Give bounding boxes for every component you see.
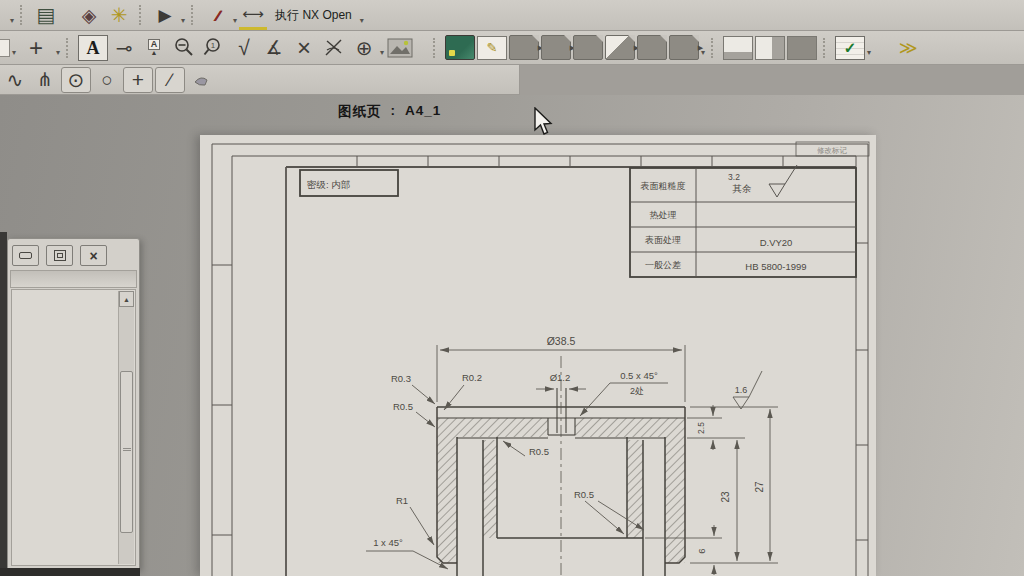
sheet-caption-label: 图纸页 bbox=[338, 103, 382, 121]
scroll-up-icon[interactable]: ▲ bbox=[119, 291, 134, 307]
table-check-icon[interactable]: ✓ bbox=[835, 36, 865, 60]
eye-tool-icon[interactable] bbox=[187, 67, 215, 93]
panel-scrollbar[interactable]: ▲ bbox=[118, 291, 134, 564]
scrollbar-grip bbox=[123, 448, 131, 451]
crosshair-icon[interactable]: + bbox=[18, 35, 54, 61]
sheet-tool-icon[interactable]: ▶ bbox=[541, 35, 571, 60]
toolbar-drag-handle[interactable] bbox=[711, 38, 717, 58]
dropdown-caret-icon[interactable]: ▾ bbox=[867, 38, 871, 57]
dimensions bbox=[366, 345, 778, 575]
center-mark-icon[interactable]: ⊕ bbox=[350, 35, 378, 61]
text-note-icon[interactable]: A bbox=[78, 35, 108, 61]
dim-chamfer-places: 2处 bbox=[630, 386, 644, 396]
zoom-out-icon[interactable] bbox=[170, 35, 198, 61]
section-strikes-icon[interactable]: ∕∕∕ bbox=[203, 2, 231, 28]
sheet-tool-icon[interactable]: ▶ bbox=[669, 35, 699, 60]
dim-height-overall: 27 bbox=[754, 481, 765, 493]
window-full-icon[interactable] bbox=[787, 36, 817, 60]
svg-text:1: 1 bbox=[211, 41, 216, 50]
window-layout-icon[interactable] bbox=[723, 36, 753, 60]
dim-chamfer-top: 0.5 x 45° bbox=[620, 370, 658, 381]
dim-height-inner: 23 bbox=[720, 491, 731, 503]
clipped-grid-icon[interactable] bbox=[0, 39, 10, 57]
panel-content[interactable]: ▲ bbox=[11, 289, 136, 566]
edit-sheet-icon[interactable]: ✎ bbox=[477, 36, 507, 60]
panel-buttons: × bbox=[8, 239, 139, 270]
datum-angle-icon[interactable]: ∡ bbox=[260, 35, 288, 61]
dim-chamfer-bottom: 1 x 45° bbox=[373, 537, 403, 548]
branch-arrow-icon[interactable]: ⋔ bbox=[31, 67, 59, 93]
dim-hole-dia: Ø1.2 bbox=[550, 372, 571, 383]
restore-icon bbox=[54, 250, 66, 261]
titleblock-row-label: 表面粗糙度 bbox=[640, 181, 686, 191]
clipped-tool-icon[interactable] bbox=[0, 2, 8, 28]
security-label: 密级: 内部 bbox=[307, 179, 350, 190]
sheet-tool-icon[interactable] bbox=[637, 35, 667, 60]
dropdown-caret-icon[interactable]: ▾ bbox=[360, 6, 364, 25]
plus-symbol-icon[interactable]: + bbox=[123, 67, 153, 93]
dimension-labels: Ø38.5 Ø1.2 0.5 x 45° 2处 R0.3 R0.2 R0.5 R… bbox=[373, 335, 765, 554]
screen-edge-dark bbox=[0, 232, 7, 576]
titleblock-row-value: D.VY20 bbox=[760, 237, 793, 248]
sheet-tool-icon[interactable] bbox=[573, 35, 603, 60]
titleblock-row-value: 其余 bbox=[733, 183, 753, 194]
spline-icon[interactable]: ∿ bbox=[1, 67, 29, 93]
intersection-icon[interactable] bbox=[320, 35, 348, 61]
play-feature-icon[interactable]: ▶ bbox=[151, 2, 179, 28]
minimize-icon bbox=[19, 252, 32, 259]
floating-panel: × ▲ bbox=[7, 238, 140, 570]
surface-finish-icon[interactable]: √ bbox=[230, 35, 258, 61]
nx-open-button[interactable]: 执行 NX Open bbox=[269, 2, 358, 28]
delete-cross-icon[interactable]: × bbox=[290, 35, 318, 61]
dim-r03: R0.3 bbox=[391, 373, 411, 384]
close-button[interactable]: × bbox=[80, 245, 107, 266]
flag-pole: ▲ bbox=[151, 49, 158, 56]
window-split-icon[interactable] bbox=[755, 36, 785, 60]
sheet-caption: 图纸页 : A4_1 bbox=[338, 103, 441, 121]
slash-symbol-icon[interactable]: ∕ bbox=[155, 67, 185, 93]
zoom-selection-icon[interactable]: 1 bbox=[200, 35, 228, 61]
circle-symbol-icon[interactable]: ○ bbox=[93, 67, 121, 93]
dim-r05-floor: R0.5 bbox=[574, 489, 594, 500]
dropdown-caret-icon[interactable]: ▾ bbox=[380, 38, 384, 57]
dim-r05-left: R0.5 bbox=[393, 401, 413, 412]
dropdown-caret-icon[interactable]: ▾ bbox=[233, 6, 237, 25]
dim-r1: R1 bbox=[396, 495, 408, 506]
dropdown-caret-icon[interactable]: ▾ bbox=[181, 6, 185, 25]
drawing-sheet[interactable]: 修改标记 密级: 内部 表面粗糙度 bbox=[200, 135, 876, 576]
revision-label: 修改标记 bbox=[817, 146, 848, 155]
titleblock-row-label: 一般公差 bbox=[645, 260, 681, 270]
label-flag-icon[interactable]: A ▲ bbox=[140, 35, 168, 61]
dim-r02: R0.2 bbox=[462, 372, 482, 383]
toolbar-separator bbox=[139, 5, 145, 25]
part-section bbox=[437, 356, 685, 576]
dim-web-thickness: 2.5 bbox=[696, 422, 706, 434]
leader-icon[interactable]: ⊸ bbox=[110, 35, 138, 61]
titleblock-row-value: HB 5800-1999 bbox=[745, 261, 806, 272]
circle-dot-symbol-icon[interactable]: ⊙ bbox=[61, 67, 91, 93]
mouse-cursor bbox=[533, 107, 555, 137]
panel-menustrip bbox=[10, 270, 137, 288]
view-capture-icon[interactable] bbox=[445, 35, 475, 60]
titleblock-row-label: 表面处理 bbox=[644, 235, 681, 245]
sheet-compare-icon[interactable]: ▶ bbox=[605, 35, 635, 60]
sheet-caption-separator: : bbox=[391, 103, 397, 121]
drawing-view: 修改标记 密级: 内部 表面粗糙度 bbox=[200, 135, 876, 576]
sheet-stack-icon[interactable]: ▤ bbox=[32, 2, 60, 28]
toolbar-separator bbox=[823, 38, 829, 58]
toolbar-drag-handle[interactable] bbox=[66, 38, 72, 58]
scrollbar-thumb[interactable] bbox=[120, 371, 133, 533]
roughness-value: 3.2 bbox=[728, 172, 740, 182]
dim-overall-dia: Ø38.5 bbox=[547, 335, 576, 347]
drawing-canvas[interactable]: 图纸页 : A4_1 bbox=[0, 95, 1024, 576]
dim-r05-cavity: R0.5 bbox=[529, 446, 549, 457]
title-block: 表面粗糙度 热处理 表面处理 一般公差 其余 D.VY20 HB 5800-19… bbox=[630, 165, 856, 277]
toolbar-row-1: ▾ ▤ ◈ ✳ ▶ ▾ ∕∕∕ ▾ ⟷ 执行 NX Open ▾ bbox=[0, 0, 1024, 31]
restore-button[interactable] bbox=[46, 245, 73, 266]
dim-floor-thickness: 6 bbox=[696, 548, 707, 553]
clipped-chevrons-icon[interactable]: ≫ bbox=[894, 35, 922, 61]
toolbar-drag-handle[interactable] bbox=[433, 38, 439, 58]
toolbar-row-2: ▾ + ▾ A ⊸ A ▲ 1 √ ∡ × ⊕ ▾ ✎ ▶ ▶ ▶ bbox=[0, 31, 1024, 65]
dropdown-caret-icon[interactable]: ▾ bbox=[56, 38, 60, 57]
dropdown-caret-icon[interactable]: ▾ bbox=[12, 38, 16, 57]
application-window: ▾ ▤ ◈ ✳ ▶ ▾ ∕∕∕ ▾ ⟷ 执行 NX Open ▾ ▾ + ▾ A… bbox=[0, 0, 1024, 576]
dropdown-caret-icon[interactable]: ▾ bbox=[10, 6, 14, 25]
toolbar-row-3: ∿ ⋔ ⊙ ○ + ∕ bbox=[0, 65, 520, 95]
sheet-caption-name: A4_1 bbox=[405, 103, 441, 121]
titleblock-row-label: 热处理 bbox=[650, 210, 677, 220]
sheet-tool-icon[interactable]: ▶ bbox=[509, 35, 539, 60]
dim-roughness-side: 1.6 bbox=[735, 385, 748, 395]
minimize-button[interactable] bbox=[12, 245, 39, 266]
measure-ruler-icon[interactable]: ⟷ bbox=[239, 0, 267, 30]
image-icon[interactable] bbox=[386, 35, 414, 61]
screen-edge-dark bbox=[0, 568, 140, 576]
toolbar-drag-handle[interactable] bbox=[20, 5, 26, 25]
gear-diamond-icon[interactable]: ✳ bbox=[105, 2, 133, 28]
diamond-part-icon[interactable]: ◈ bbox=[75, 2, 103, 28]
security-box: 密级: 内部 bbox=[300, 170, 398, 196]
toolbar-separator bbox=[191, 5, 197, 25]
